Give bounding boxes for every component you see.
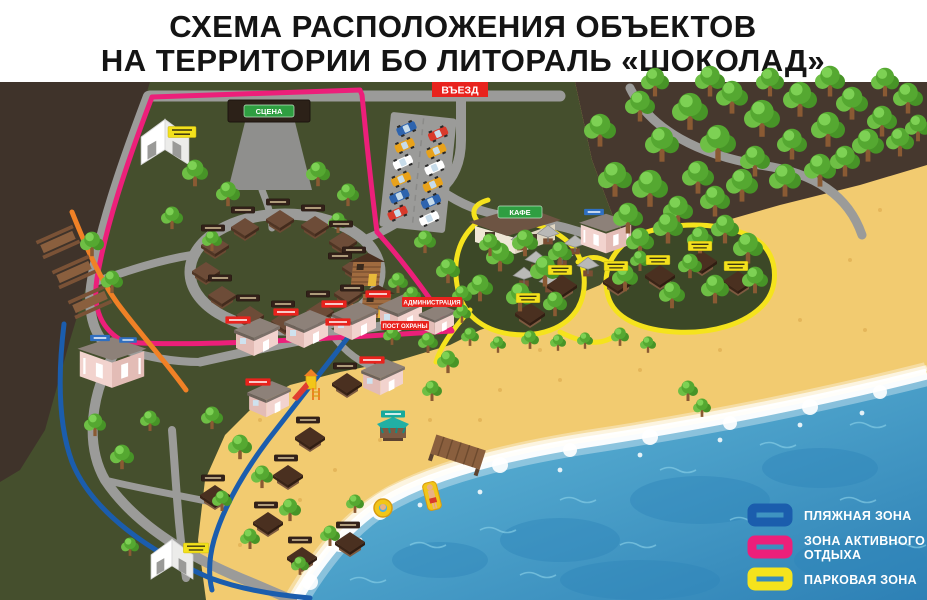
cabin-badge [301,205,324,211]
beach-hut-badge [381,411,405,418]
gazebo-badge [288,537,311,543]
cabin-badge [208,275,231,281]
cafe-sign-label: КАФЕ [509,208,530,217]
tent-badge [183,543,208,553]
security-post-badge: ПОСТ ОХРАНЫ [381,321,429,330]
cafe-sign: КАФЕ [498,206,542,218]
tent-badge [168,127,196,138]
park-gazebo-badge [646,255,670,264]
administration-badge: АДМИНИСТРАЦИЯ [402,297,462,307]
washroom-badge [119,337,137,343]
park-gazebo-badge [688,241,712,250]
gazebo-badge [254,502,277,508]
cottage-badge [321,300,346,307]
legend-label-active-line1: ЗОНА АКТИВНОГО [804,534,925,548]
park-gazebo-badge [604,261,628,270]
washroom-badge [584,209,604,215]
page-title-line1: СХЕМА РАСПОЛОЖЕНИЯ ОБЪЕКТОВ [169,9,756,44]
gazebo-badge [296,417,319,423]
gazebo-badge [201,475,224,481]
parking-lot [379,112,457,233]
administration-badge-label: АДМИНИСТРАЦИЯ [403,300,461,307]
washroom-badge [90,335,110,341]
legend-label-park: ПАРКОВАЯ ЗОНА [804,573,917,587]
cabin-badge [328,253,351,259]
rental-badge [325,318,350,325]
entrance-badge-label: ВЪЕЗД [441,85,479,97]
header: СХЕМА РАСПОЛОЖЕНИЯ ОБЪЕКТОВ НА ТЕРРИТОРИ… [0,0,927,82]
cabin-badge [306,291,329,297]
cottage-badge [273,308,298,315]
cabin-badge [231,207,254,213]
cabin-badge [271,301,294,307]
cabin-badge [201,225,224,231]
house-badge [245,378,270,385]
park-gazebo-badge [548,265,572,274]
swimmer-ring [374,499,392,517]
site-map: СХЕМА РАСПОЛОЖЕНИЯ ОБЪЕКТОВ НА ТЕРРИТОРИ… [0,0,927,600]
entrance-badge: ВЪЕЗД [432,82,488,97]
legend-label-beach: ПЛЯЖНАЯ ЗОНА [804,509,912,523]
stage-sign-label: СЦЕНА [256,107,283,116]
cabin-badge [340,285,363,291]
legend-label-active-line2: ОТДЫХА [804,548,861,562]
cottage-badge [365,290,390,297]
gazebo-badge [274,455,297,461]
cabin-badge [266,199,289,205]
gazebo-badge [333,363,356,369]
cabin-badge [236,295,259,301]
cabin-badge [342,247,365,253]
cabin-badge [329,221,352,227]
park-gazebo-badge [724,261,748,270]
cottage-badge [225,316,250,323]
security-post-badge-label: ПОСТ ОХРАНЫ [383,324,428,330]
stage: СЦЕНА [228,100,310,122]
house-badge [359,356,384,363]
gazebo-badge [336,522,359,528]
park-gazebo-badge [516,293,540,302]
